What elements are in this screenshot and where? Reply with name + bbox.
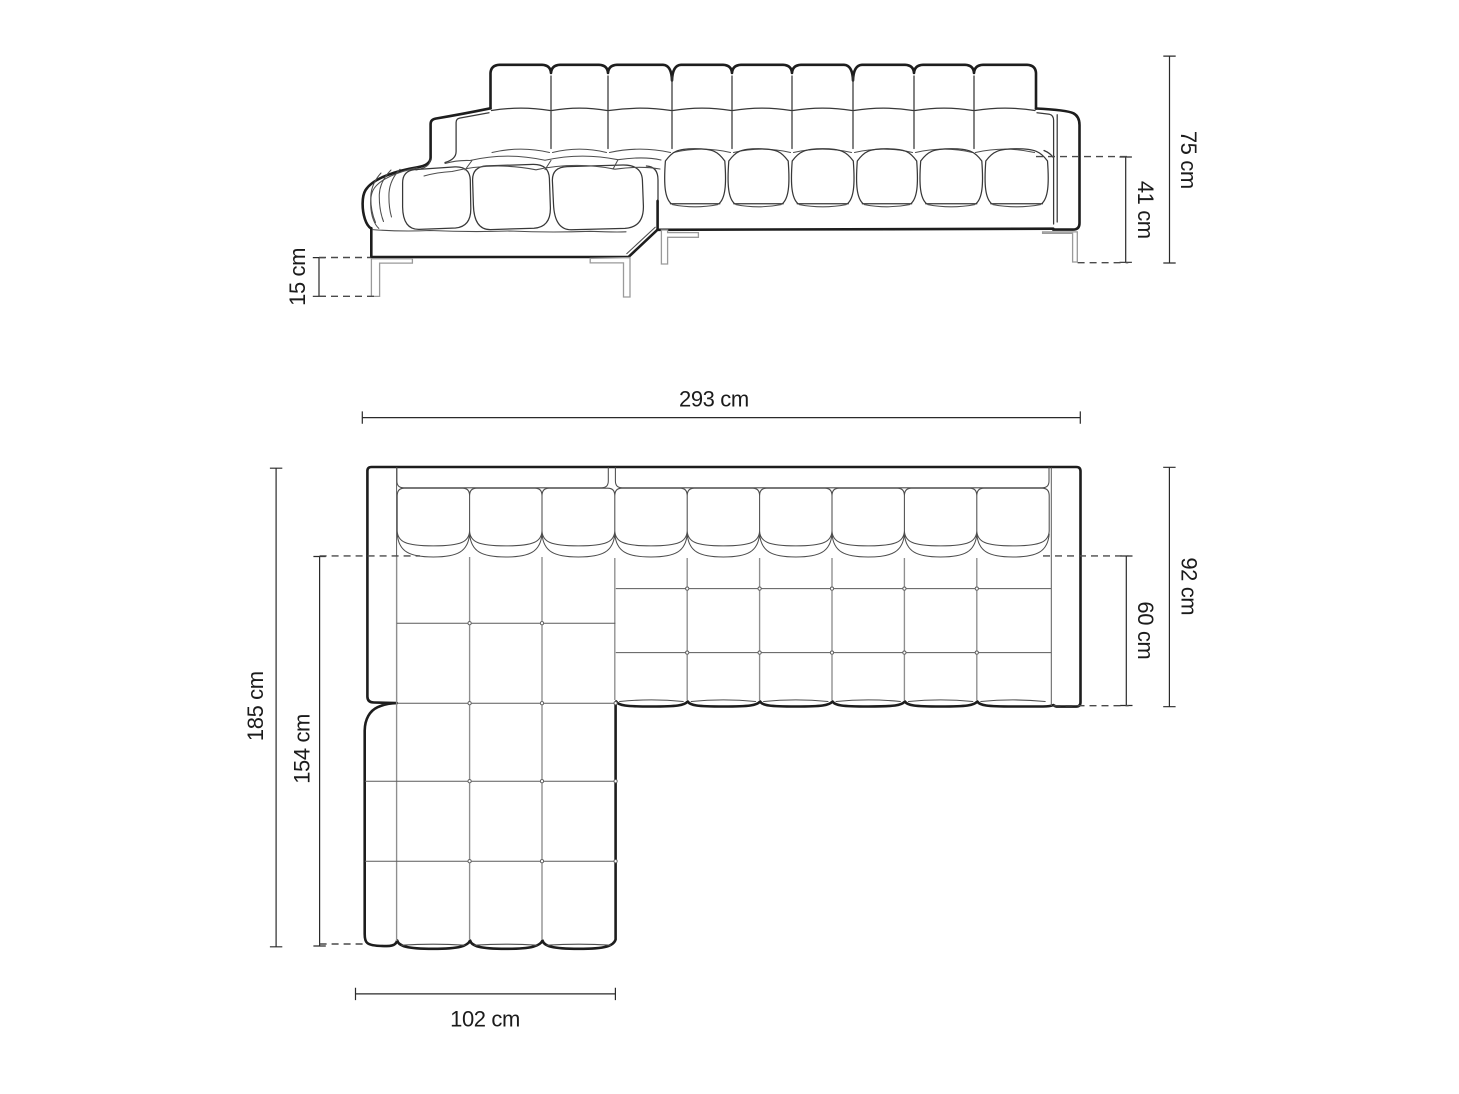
svg-text:41 cm: 41 cm: [1133, 181, 1158, 239]
svg-text:154 cm: 154 cm: [290, 714, 315, 784]
svg-text:75 cm: 75 cm: [1176, 131, 1201, 189]
svg-text:293 cm: 293 cm: [679, 386, 749, 411]
svg-text:92 cm: 92 cm: [1176, 557, 1201, 615]
svg-text:15 cm: 15 cm: [285, 248, 310, 306]
svg-text:102 cm: 102 cm: [450, 1007, 520, 1032]
svg-text:185 cm: 185 cm: [243, 671, 268, 741]
svg-text:60 cm: 60 cm: [1133, 601, 1158, 659]
